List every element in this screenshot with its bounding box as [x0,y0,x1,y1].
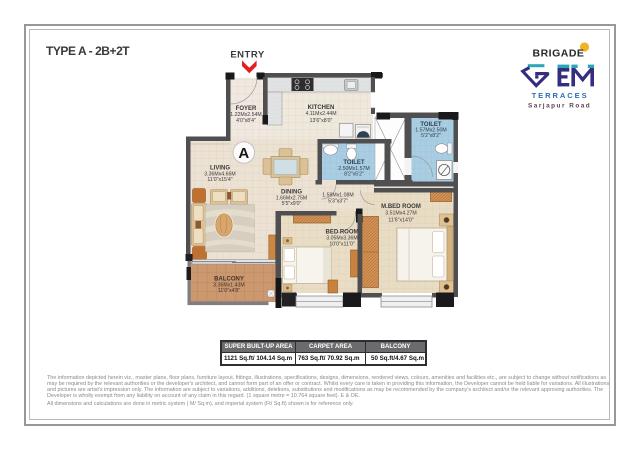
svg-text:M.BED ROOM: M.BED ROOM [381,204,421,210]
svg-text:10'0"x11'0": 10'0"x11'0" [329,242,354,248]
svg-text:5'5"x9'0": 5'5"x9'0" [282,201,302,207]
svg-text:5'2"x8'2": 5'2"x8'2" [421,133,441,139]
svg-text:11'6"x14'0": 11'6"x14'0" [388,218,413,224]
svg-text:4.11Mx2.44M: 4.11Mx2.44M [305,111,336,117]
svg-text:13'6"x8'0": 13'6"x8'0" [310,118,333,124]
svg-text:A: A [238,145,249,162]
svg-text:11'0"x15'4": 11'0"x15'4" [207,177,232,183]
svg-text:8'2"x5'2": 8'2"x5'2" [344,172,364,178]
svg-text:3.51Mx4.27M: 3.51Mx4.27M [385,211,416,217]
svg-text:11'0"x4'8": 11'0"x4'8" [218,288,240,294]
svg-text:5'3"x3'7": 5'3"x3'7" [328,199,348,205]
svg-text:4'0"x8'4": 4'0"x8'4" [236,118,256,124]
svg-text:ENTRY: ENTRY [230,50,265,61]
